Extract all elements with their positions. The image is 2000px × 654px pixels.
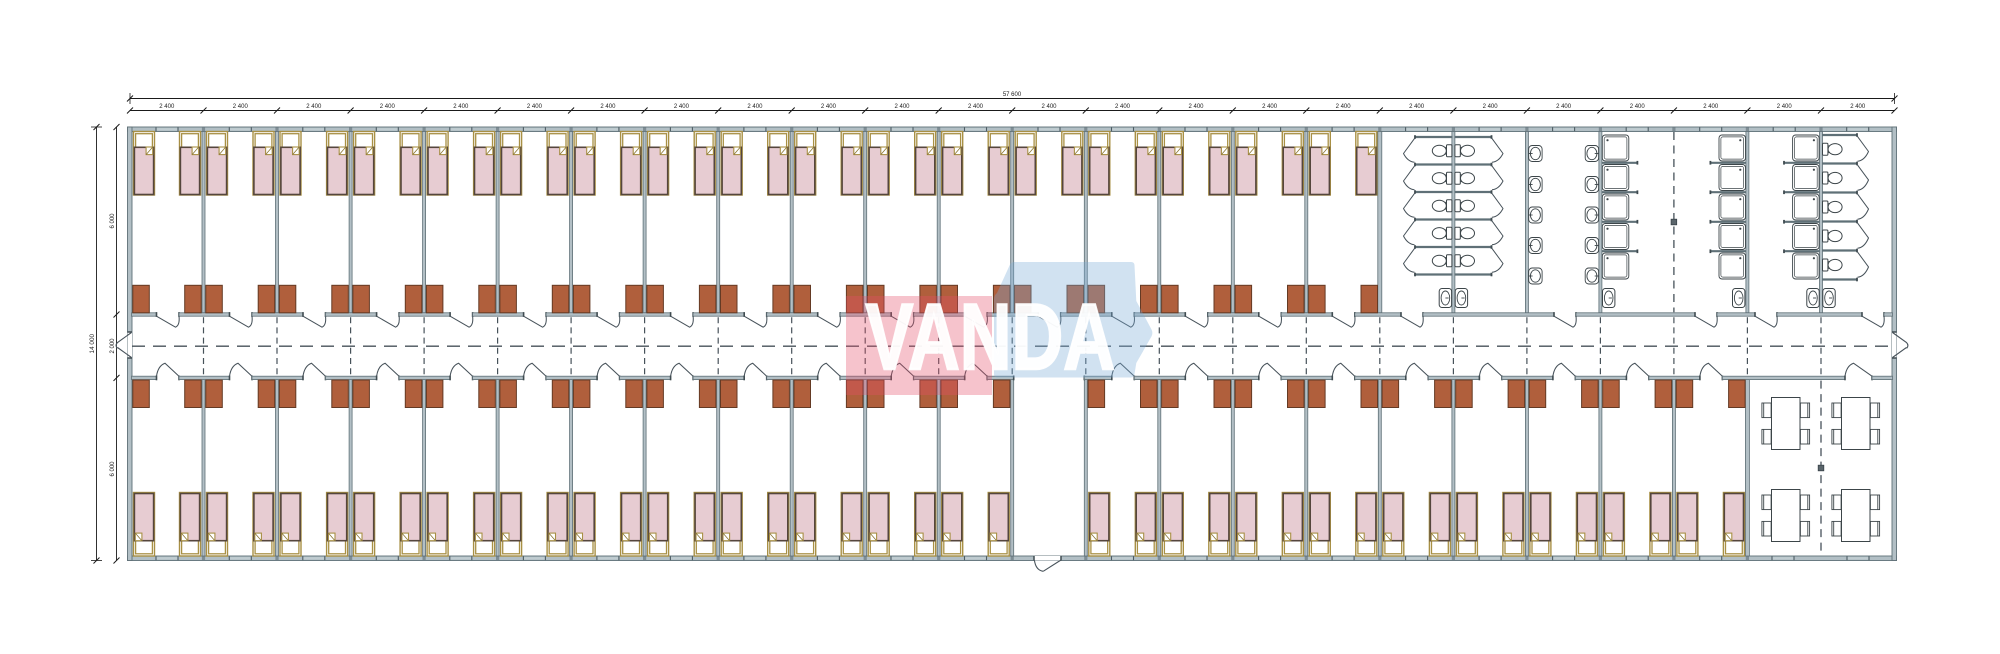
svg-text:2 400: 2 400: [600, 104, 616, 110]
svg-text:2 400: 2 400: [1188, 104, 1204, 110]
svg-text:2 400: 2 400: [821, 104, 837, 110]
svg-text:2 400: 2 400: [1483, 104, 1499, 110]
svg-text:2 400: 2 400: [894, 104, 910, 110]
svg-text:2 400: 2 400: [159, 104, 175, 110]
svg-text:2 400: 2 400: [968, 104, 984, 110]
svg-text:2 400: 2 400: [1336, 104, 1352, 110]
svg-text:2 400: 2 400: [306, 104, 322, 110]
svg-text:2 400: 2 400: [674, 104, 690, 110]
svg-text:2 400: 2 400: [1630, 104, 1646, 110]
svg-text:2 400: 2 400: [1041, 104, 1057, 110]
svg-text:14 000: 14 000: [89, 333, 96, 353]
svg-text:2 400: 2 400: [380, 104, 396, 110]
svg-text:2 400: 2 400: [1262, 104, 1278, 110]
svg-text:6 000: 6 000: [110, 461, 116, 477]
svg-text:57 600: 57 600: [1003, 92, 1022, 98]
svg-text:2 400: 2 400: [527, 104, 543, 110]
svg-text:2 400: 2 400: [1115, 104, 1131, 110]
svg-text:2 400: 2 400: [1777, 104, 1793, 110]
svg-text:6 000: 6 000: [110, 213, 116, 229]
svg-text:2 400: 2 400: [747, 104, 763, 110]
svg-text:2 400: 2 400: [1850, 104, 1866, 110]
svg-text:VANDA: VANDA: [866, 284, 1116, 389]
svg-text:2 400: 2 400: [1556, 104, 1572, 110]
svg-text:2 400: 2 400: [233, 104, 249, 110]
svg-text:2 000: 2 000: [110, 338, 116, 354]
svg-text:2 400: 2 400: [1703, 104, 1719, 110]
svg-text:2 400: 2 400: [1409, 104, 1425, 110]
svg-text:2 400: 2 400: [453, 104, 469, 110]
